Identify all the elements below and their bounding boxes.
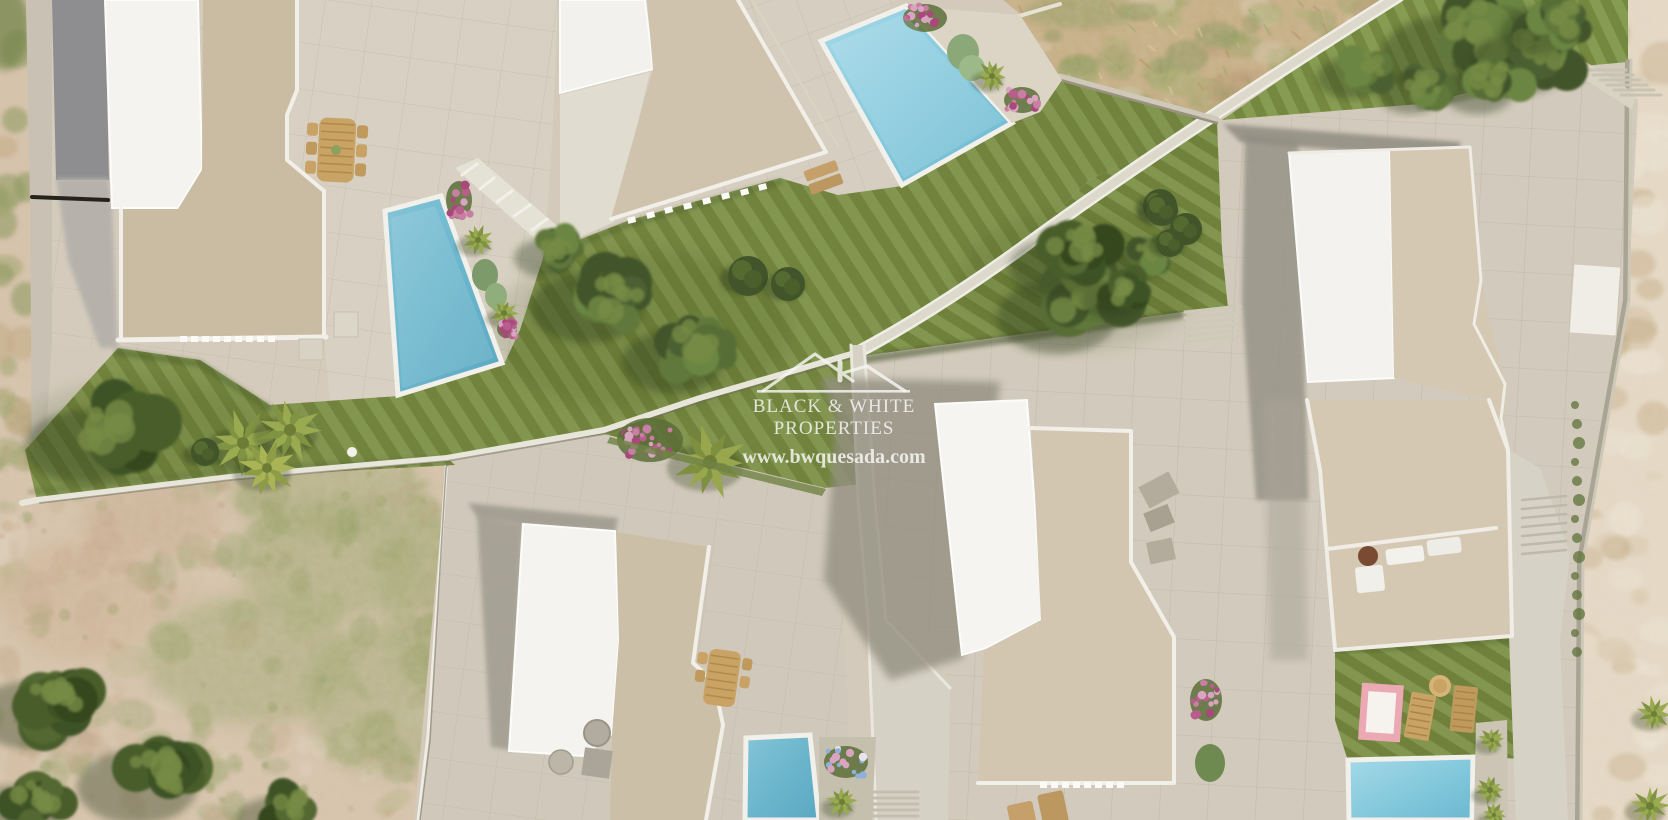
svg-text:BLACK & WHITE: BLACK & WHITE <box>753 396 916 417</box>
svg-text:www.bwquesada.com: www.bwquesada.com <box>742 446 926 468</box>
svg-text:PROPERTIES: PROPERTIES <box>774 418 895 439</box>
